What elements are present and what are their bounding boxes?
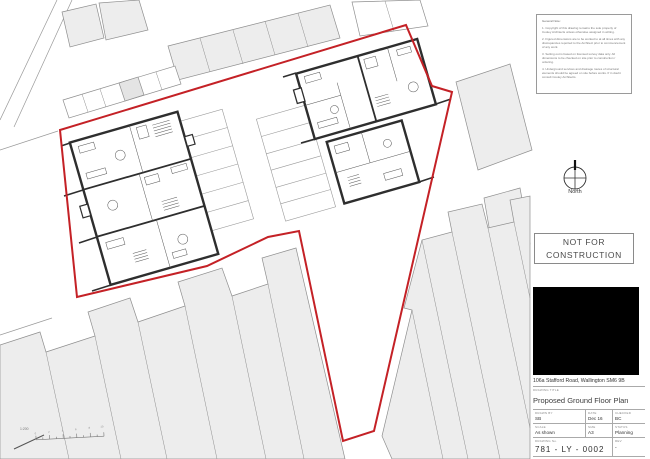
drawing-title: Proposed Ground Floor Plan [533, 396, 645, 405]
practice-logo-box [533, 287, 639, 375]
not-for-construction-stamp: NOT FOR CONSTRUCTION [534, 233, 634, 264]
field-checked: CHECKED BC [613, 410, 645, 423]
field-drawing-number: DRAWING No. 781 - LY - 0002 [533, 438, 613, 456]
north-label: North [552, 189, 598, 195]
scale-ratio-label: 1:200 [20, 427, 29, 431]
title-block-table: DRAWN BY SB DATE Dec 16 CHECKED BC SCALE… [533, 409, 645, 457]
neighbor-terrace-south-east [382, 196, 530, 459]
table-row: DRAWING No. 781 - LY - 0002 REV - [533, 438, 645, 457]
field-status: STATUS Planning [613, 424, 645, 437]
field-date: DATE Dec 16 [586, 410, 613, 423]
field-revision: REV - [613, 438, 645, 456]
neighbor-terrace-south-west [0, 248, 345, 459]
field-size: SIZE A3 [586, 424, 613, 437]
table-row: SCALE As shown SIZE A3 STATUS Planning [533, 424, 645, 438]
field-scale: SCALE As shown [533, 424, 586, 437]
field-drawn-by: DRAWN BY SB [533, 410, 586, 423]
stamp-text: NOT FOR CONSTRUCTION [535, 236, 633, 261]
general-notes-heading: General Note: [542, 19, 626, 23]
drawing-sheet: 1:200 0 2 4 6 8 10 General Note: [0, 0, 650, 459]
project-address: 106a Stafford Road, Wallington SM6 9B [533, 378, 645, 384]
general-note: 3. Setting out is based on licensed surv… [542, 52, 626, 64]
title-block-separator [533, 386, 645, 387]
general-note: 4. Underground services and drainage rou… [542, 67, 626, 79]
drawing-title-label: DRAWING TITLE [533, 388, 645, 392]
general-note: 2. Figured dimensions are to be worked t… [542, 37, 626, 49]
general-notes-box: General Note: 1. Copyright of this drawi… [536, 14, 632, 94]
general-note: 1. Copyright of this drawing remains the… [542, 26, 626, 34]
table-row: DRAWN BY SB DATE Dec 16 CHECKED BC [533, 410, 645, 424]
